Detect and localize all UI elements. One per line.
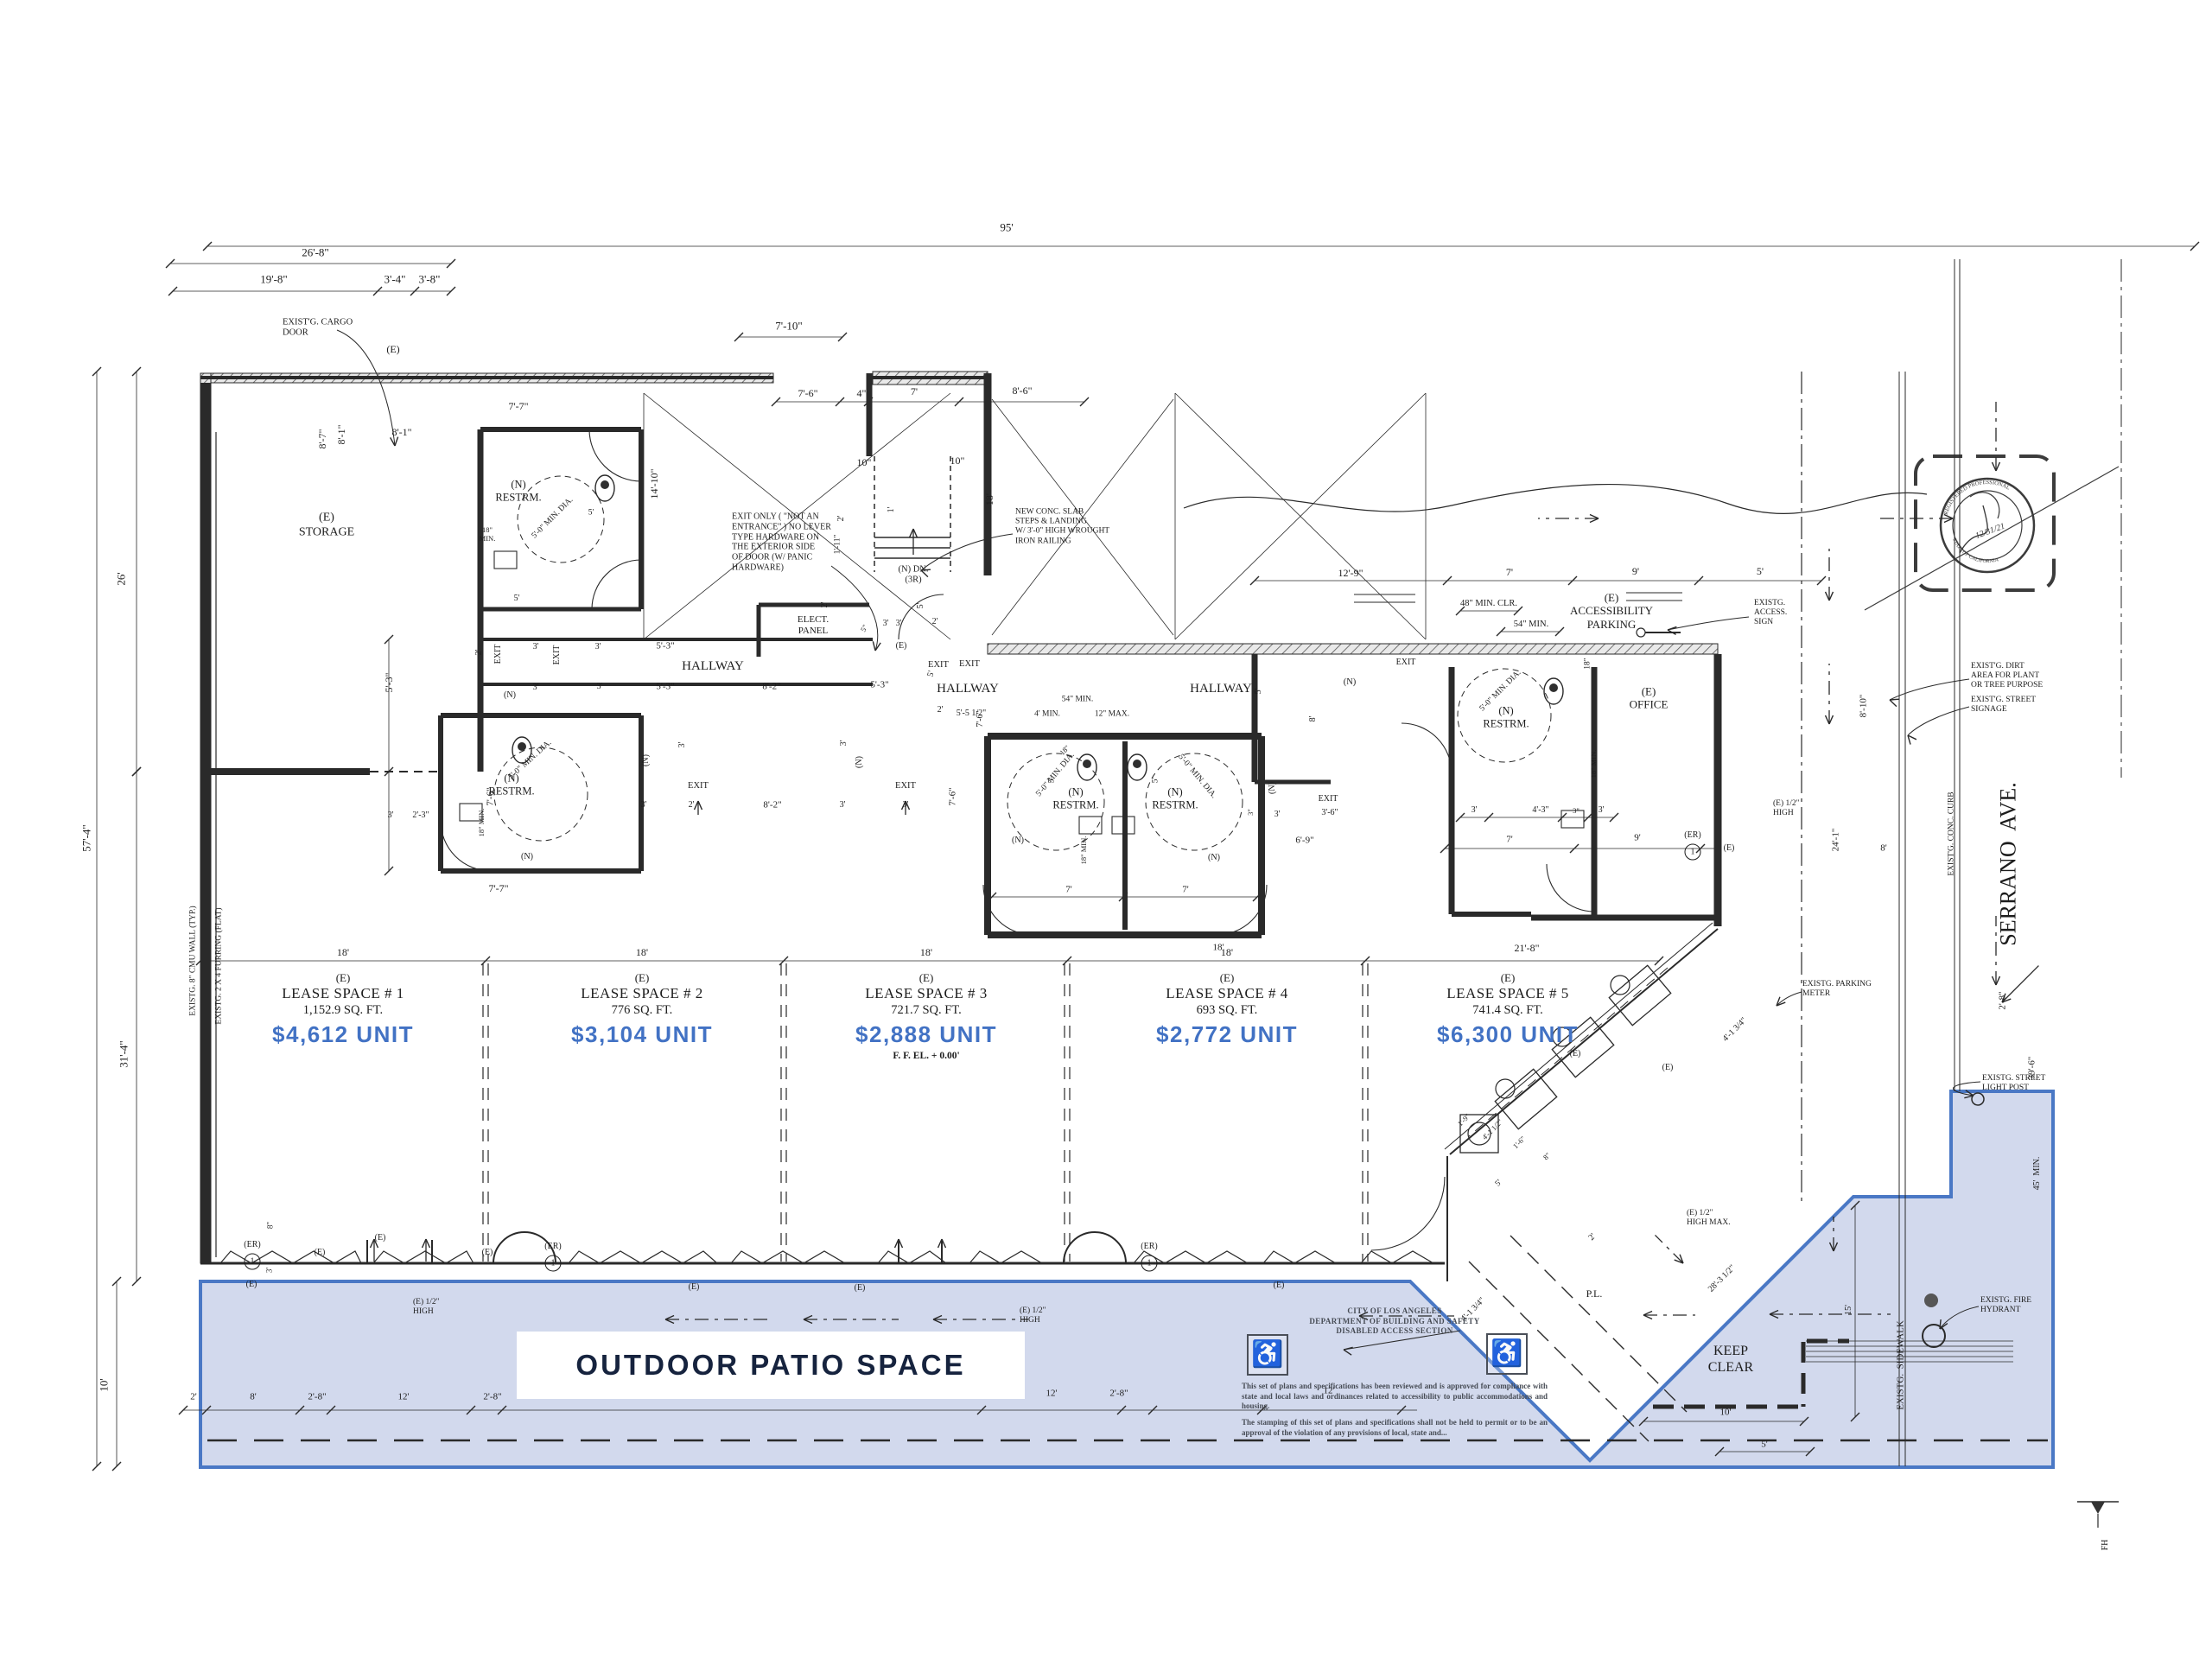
room-office: (E) OFFICE bbox=[1630, 685, 1669, 712]
tag: 1 bbox=[1685, 844, 1701, 861]
room-restroom: (N) RESTRM. bbox=[1152, 785, 1198, 811]
dim: 1' bbox=[887, 507, 897, 513]
dim: 45' MIN. bbox=[2032, 1157, 2043, 1191]
dim: 9' bbox=[1634, 833, 1640, 844]
seal-date: 12/31/21 bbox=[1974, 522, 2006, 541]
dim: 14'-10" bbox=[648, 468, 660, 499]
tag: (E) bbox=[375, 1233, 386, 1243]
tag: (E) bbox=[896, 641, 907, 652]
dim: 5' bbox=[1047, 778, 1057, 783]
dim: 54" MIN. bbox=[1062, 695, 1094, 704]
lease-area: 741.4 SQ. FT. bbox=[1370, 1003, 1646, 1018]
dim: 7'-7" bbox=[488, 882, 508, 894]
dim: 5' bbox=[514, 594, 520, 604]
room-elect-panel: ELECT. PANEL bbox=[798, 614, 829, 637]
room-restroom: (N) RESTRM. bbox=[1052, 785, 1098, 811]
lease-tag: (E) bbox=[1370, 971, 1646, 985]
dim: 3' bbox=[388, 810, 394, 821]
dim: 18' bbox=[920, 946, 932, 958]
lease-area: 776 SQ. FT. bbox=[504, 1003, 780, 1018]
tag: (N) bbox=[1012, 836, 1024, 846]
dim: 5'-3" bbox=[656, 641, 674, 652]
dim: 3' bbox=[265, 1268, 275, 1273]
lease-price: $2,772 UNIT bbox=[1089, 1021, 1365, 1048]
dim: 39'-6" bbox=[2027, 1057, 2038, 1080]
tag: (N) bbox=[504, 690, 516, 701]
dim: 18" MIN. bbox=[480, 525, 496, 543]
note-street-signage: EXIST'G. STREET SIGNAGE bbox=[1971, 696, 2036, 715]
dim: 2' bbox=[820, 602, 830, 608]
dim: 2' bbox=[836, 516, 847, 522]
dim: 10" bbox=[857, 456, 872, 468]
dim: 18" MIN. bbox=[1079, 836, 1088, 865]
note-cargo-door: EXIST'G. CARGO DOOR bbox=[283, 318, 353, 340]
dim: 2'-8" bbox=[308, 1392, 326, 1403]
lease-price: $6,300 UNIT bbox=[1370, 1021, 1646, 1048]
dim: 5' bbox=[916, 603, 926, 609]
label-exit: EXIT bbox=[959, 659, 980, 670]
dim: 5' bbox=[1761, 1440, 1767, 1451]
label-exit: EXIT bbox=[928, 660, 949, 671]
dim: 8' bbox=[1880, 843, 1886, 855]
lease-price: $2,888 UNIT bbox=[788, 1021, 1065, 1048]
dim: 4' MIN. bbox=[1034, 709, 1060, 719]
dim: 3" bbox=[1573, 806, 1580, 815]
tag: (E) bbox=[246, 1280, 257, 1290]
dim: 24'-1" bbox=[1831, 829, 1842, 852]
note-dirt-area: EXIST'G. DIRT AREA FOR PLANT OR TREE PUR… bbox=[1971, 662, 2043, 691]
tag: (N) bbox=[521, 852, 533, 862]
tag: (ER) bbox=[244, 1240, 260, 1250]
dim: 8" bbox=[266, 1222, 276, 1229]
dim: 3'-8" bbox=[419, 272, 441, 285]
dim: 8' bbox=[1308, 716, 1319, 722]
room-hallway: HALLWAY bbox=[682, 659, 744, 675]
label-down: (N) DN. (3R) bbox=[899, 565, 929, 587]
dim: 5'-3" bbox=[656, 682, 674, 693]
lease-name: LEASE SPACE # 1 bbox=[205, 985, 481, 1002]
note-cmu: EXISTG. 8" CMU WALL (TYP.) bbox=[188, 906, 198, 1015]
note-fire-hydrant: EXISTG. FIRE HYDRANT bbox=[1980, 1296, 2031, 1315]
label-exit: EXIT bbox=[895, 781, 916, 791]
dim: 5'-3" bbox=[870, 680, 888, 691]
dim: 5'-3" bbox=[383, 672, 395, 692]
lease-space-2: (E)LEASE SPACE # 2776 SQ. FT.$3,104 UNIT bbox=[504, 971, 780, 1048]
lease-area: 693 SQ. FT. bbox=[1089, 1003, 1365, 1018]
tag: (E) bbox=[1724, 843, 1735, 854]
note-curb: (E) 1/2" HIGH bbox=[413, 1298, 440, 1317]
dim: 3' bbox=[883, 619, 889, 629]
lease-note: F. F. EL. + 0.00' bbox=[788, 1051, 1065, 1061]
dim: 9' bbox=[1632, 565, 1639, 577]
dim: 3' bbox=[1471, 805, 1478, 816]
dim: 7'-10" bbox=[775, 319, 802, 332]
floor-plan-drawing: REGISTERED PROFESSIONAL STATE OF CALIFOR… bbox=[0, 0, 2212, 1659]
lease-tag: (E) bbox=[1089, 971, 1365, 985]
dim: 18" MIN. bbox=[477, 809, 486, 837]
lease-name: LEASE SPACE # 4 bbox=[1089, 985, 1365, 1002]
dim: 3' bbox=[839, 741, 849, 747]
lease-name: LEASE SPACE # 2 bbox=[504, 985, 780, 1002]
tag: (N) bbox=[1208, 853, 1220, 863]
dim: 8'-10" bbox=[1859, 695, 1870, 718]
dim: 26' bbox=[114, 572, 127, 585]
dim: 3' bbox=[903, 800, 909, 810]
note-curb: (E) 1/2" HIGH bbox=[1773, 799, 1800, 818]
dim: 6'-9" bbox=[1295, 836, 1313, 847]
label-exit: EXIT bbox=[1396, 658, 1416, 668]
label-street: SERRANO AVE. bbox=[1996, 782, 2023, 946]
dim: 2' bbox=[689, 800, 695, 810]
dim: 8'-2" bbox=[763, 800, 781, 811]
tag: (N) bbox=[641, 754, 652, 766]
dim: 10' bbox=[1720, 1408, 1732, 1419]
label-exit: EXIT bbox=[688, 781, 709, 791]
dim: 3' bbox=[677, 742, 688, 748]
lease-price: $3,104 UNIT bbox=[504, 1021, 780, 1048]
tag: (E) bbox=[386, 343, 399, 355]
dim: 3'-4" bbox=[385, 272, 406, 285]
dim: 4" bbox=[857, 387, 867, 399]
tag: (E) bbox=[315, 1248, 326, 1258]
dim: 57'-4" bbox=[79, 824, 92, 851]
floor-plan-page: REGISTERED PROFESSIONAL STATE OF CALIFOR… bbox=[0, 0, 2212, 1659]
engineer-seal: REGISTERED PROFESSIONAL STATE OF CALIFOR… bbox=[1865, 456, 2119, 610]
dim: 12' bbox=[398, 1392, 410, 1403]
dim: 7'-6" bbox=[976, 710, 986, 727]
dim: 15' bbox=[1844, 1305, 1854, 1315]
tag: (ER) bbox=[544, 1242, 561, 1252]
dim: 10" bbox=[950, 454, 965, 467]
stamp-header-line: CITY OF LOS ANGELES bbox=[1242, 1306, 1548, 1317]
note-access-sign: EXISTG. ACCESS. SIGN bbox=[1754, 599, 1787, 628]
tag: (E) bbox=[689, 1282, 700, 1293]
room-restroom: (N) RESTRM. bbox=[495, 478, 541, 504]
dim: 3' bbox=[1274, 810, 1281, 820]
stamp-paragraph: This set of plans and specifications has… bbox=[1242, 1382, 1548, 1412]
note-curb: (E) 1/2" HIGH MAX. bbox=[1687, 1209, 1731, 1228]
room-hallway: HALLWAY bbox=[1190, 682, 1252, 697]
label-property-line: P.L. bbox=[1586, 1287, 1603, 1300]
dim: 19'-8" bbox=[260, 272, 287, 285]
label-keep-clear: KEEP CLEAR bbox=[1708, 1344, 1753, 1376]
dim: 2'-8" bbox=[1998, 991, 2009, 1009]
city-approval-stamp: CITY OF LOS ANGELES DEPARTMENT OF BUILDI… bbox=[1242, 1306, 1548, 1439]
dim: 7'-7" bbox=[508, 400, 528, 412]
dim: 2' bbox=[938, 705, 944, 715]
lease-tag: (E) bbox=[205, 971, 481, 985]
tag: (E) bbox=[1662, 1063, 1674, 1073]
dim: 3' bbox=[1599, 805, 1605, 816]
dim: 31'-4" bbox=[117, 1040, 130, 1067]
label-exit: EXIT bbox=[493, 645, 504, 664]
dim: 7' bbox=[1065, 885, 1071, 896]
dim: 54" MIN. bbox=[1514, 620, 1548, 630]
tag: (E) bbox=[482, 1248, 493, 1258]
outdoor-patio-area[interactable] bbox=[200, 1091, 2053, 1467]
dim: 48" MIN. CLR. bbox=[1460, 599, 1517, 609]
dim: 2' bbox=[190, 1392, 196, 1403]
dim: 7' bbox=[911, 385, 918, 397]
dim: 3'-6" bbox=[1321, 808, 1338, 818]
dim: 18' bbox=[1221, 946, 1233, 958]
dim: 95' bbox=[1000, 220, 1013, 233]
dim: 18' bbox=[983, 493, 995, 505]
label-exit: EXIT bbox=[552, 645, 563, 665]
stamp-header-line: DISABLED ACCESS SECTION bbox=[1242, 1326, 1548, 1337]
dim: 8'-2" bbox=[762, 682, 780, 693]
dim: 2'-3" bbox=[412, 810, 429, 821]
tag: (ER) bbox=[1684, 830, 1700, 841]
dim: 2' bbox=[474, 650, 485, 656]
dim: 1'-11" bbox=[833, 535, 842, 555]
dim: 7' bbox=[1506, 566, 1513, 578]
note-new-slab: NEW CONC. SLAB STEPS & LANDING W/ 3'-0" … bbox=[1015, 508, 1109, 547]
tag: 1 bbox=[1141, 1255, 1158, 1272]
dim: 18' bbox=[636, 946, 648, 958]
dim: 26'-8" bbox=[302, 245, 328, 258]
dim: 3" bbox=[1246, 809, 1255, 816]
dim: 3' bbox=[641, 800, 647, 810]
dim: 7'-6" bbox=[948, 787, 959, 805]
dim: 8'-6" bbox=[1012, 385, 1032, 397]
lease-price: $4,612 UNIT bbox=[205, 1021, 481, 1048]
tag: (E) bbox=[1570, 1049, 1581, 1059]
dim: 7' bbox=[1182, 885, 1188, 896]
dim: 8'-7" bbox=[316, 429, 328, 448]
room-storage: (E) STORAGE bbox=[299, 511, 354, 539]
dim: 8'-1" bbox=[335, 424, 347, 444]
tag: (N) bbox=[1344, 677, 1357, 688]
label-sidewalk: EXISTG. SIDEWALK bbox=[1896, 1320, 1907, 1410]
dim: 8' bbox=[250, 1392, 256, 1403]
dim: 7' bbox=[1506, 835, 1512, 846]
dim: 2'-8" bbox=[483, 1392, 501, 1403]
tag: 1 bbox=[245, 1254, 261, 1270]
lease-tag: (E) bbox=[504, 971, 780, 985]
lease-name: LEASE SPACE # 3 bbox=[788, 985, 1065, 1002]
dim: 3' bbox=[896, 619, 902, 629]
label-fh: FH bbox=[2101, 1540, 2111, 1551]
note-exit-only: EXIT ONLY ( "NOT AN ENTRANCE" ) NO LEVER… bbox=[732, 512, 831, 574]
label-exit: EXIT bbox=[1319, 794, 1338, 804]
tag: (N) bbox=[855, 756, 865, 768]
tag: (ER) bbox=[1141, 1242, 1157, 1252]
lease-area: 1,152.9 SQ. FT. bbox=[205, 1003, 481, 1018]
dim: 3' bbox=[533, 683, 539, 693]
lease-space-5: (E)LEASE SPACE # 5741.4 SQ. FT.$6,300 UN… bbox=[1370, 971, 1646, 1048]
stamp-paragraph: The stamping of this set of plans and sp… bbox=[1242, 1418, 1548, 1438]
note-parking-meter: EXISTG. PARKING METER bbox=[1802, 980, 1872, 999]
dim: 8'-1" bbox=[391, 426, 411, 438]
lease-tag: (E) bbox=[788, 971, 1065, 985]
dim: 3' bbox=[533, 642, 539, 652]
dim: 3' bbox=[595, 642, 601, 652]
dim: 5' bbox=[1151, 778, 1160, 783]
dim: 18" MIN. bbox=[1589, 750, 1598, 779]
seal-arc-top-text: REGISTERED PROFESSIONAL bbox=[1943, 480, 2012, 516]
lease-space-4: (E)LEASE SPACE # 4693 SQ. FT.$2,772 UNIT bbox=[1089, 971, 1365, 1048]
seal-arc-bottom-text: STATE OF CALIFORNIA bbox=[1951, 537, 1999, 564]
dim: 10' bbox=[97, 1378, 110, 1391]
lease-area: 721.7 SQ. FT. bbox=[788, 1003, 1065, 1018]
room-accessibility-parking: (E) ACCESSIBILITY PARKING bbox=[1570, 591, 1653, 631]
dim: 5' bbox=[1254, 689, 1264, 695]
label-conc-curb: EXIST'G. CONC. CURB bbox=[1947, 791, 1956, 875]
stamp-header-line: DEPARTMENT OF BUILDING AND SAFETY bbox=[1242, 1317, 1548, 1327]
dim: 12'-9" bbox=[1338, 567, 1363, 579]
dim: 12' bbox=[1046, 1389, 1058, 1400]
dim: 21'-8" bbox=[1514, 942, 1539, 954]
dim: 2'-8" bbox=[1109, 1389, 1128, 1400]
dim: 2' bbox=[932, 617, 938, 627]
tag: (N) bbox=[1268, 782, 1278, 794]
dim: 7'-6" bbox=[798, 387, 817, 399]
outdoor-patio-banner: OUTDOOR PATIO SPACE bbox=[517, 1332, 1025, 1399]
dim: 4'-3" bbox=[1532, 805, 1548, 816]
dim: 18' bbox=[337, 946, 349, 958]
dim: 5' bbox=[588, 508, 594, 518]
tag: (E) bbox=[1274, 1281, 1285, 1291]
lease-name: LEASE SPACE # 5 bbox=[1370, 985, 1646, 1002]
dim: 5' bbox=[1757, 565, 1764, 577]
dim: 3' bbox=[840, 800, 846, 810]
tag: 1 bbox=[545, 1255, 562, 1272]
note-curb: (E) 1/2" HIGH bbox=[1020, 1306, 1046, 1325]
tag: (E) bbox=[855, 1283, 866, 1294]
lease-space-1: (E)LEASE SPACE # 11,152.9 SQ. FT.$4,612 … bbox=[205, 971, 481, 1048]
dim: 18" bbox=[1583, 658, 1592, 669]
lease-space-3: (E)LEASE SPACE # 3721.7 SQ. FT.$2,888 UN… bbox=[788, 971, 1065, 1061]
dim: 3' bbox=[597, 682, 603, 692]
dim: 12" MAX. bbox=[1095, 709, 1129, 719]
room-hallway: HALLWAY bbox=[937, 682, 999, 697]
